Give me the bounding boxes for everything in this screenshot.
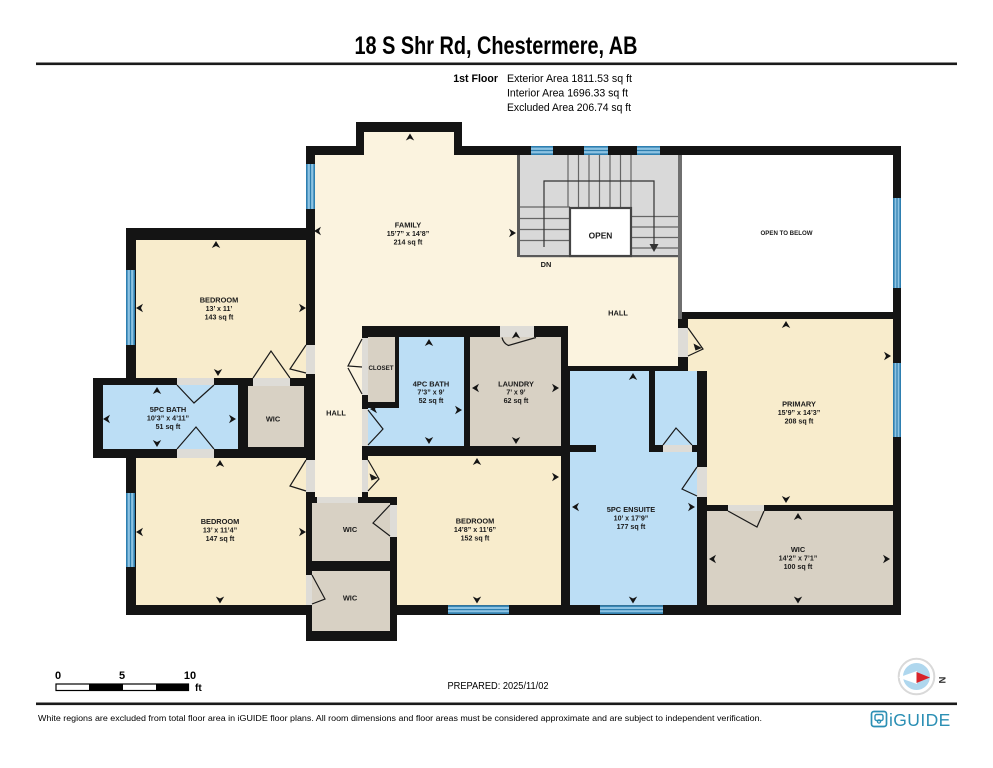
svg-text:18 S Shr Rd, Chestermere, AB: 18 S Shr Rd, Chestermere, AB (355, 32, 638, 60)
svg-text:PREPARED: 2025/11/02: PREPARED: 2025/11/02 (448, 681, 549, 692)
svg-text:ft: ft (195, 683, 202, 694)
svg-text:7’3” x 9’: 7’3” x 9’ (417, 389, 444, 397)
svg-text:Excluded Area 206.74 sq ft: Excluded Area 206.74 sq ft (507, 102, 631, 114)
svg-text:5: 5 (119, 670, 125, 682)
svg-text:HALL: HALL (326, 409, 346, 418)
svg-text:HALL: HALL (608, 309, 628, 318)
svg-text:14’8” x 11’6”: 14’8” x 11’6” (454, 526, 497, 534)
svg-text:15’7” x 14’8”: 15’7” x 14’8” (387, 230, 430, 238)
svg-text:WIC: WIC (791, 545, 806, 554)
svg-text:BEDROOM: BEDROOM (456, 517, 495, 526)
svg-text:152 sq ft: 152 sq ft (461, 534, 490, 542)
svg-text:7’ x 9’: 7’ x 9’ (506, 389, 525, 397)
svg-text:OPEN: OPEN (589, 231, 613, 241)
svg-text:White regions are excluded fro: White regions are excluded from total fl… (38, 713, 762, 723)
svg-text:DN: DN (541, 260, 552, 269)
svg-text:10’3” x 4’11”: 10’3” x 4’11” (147, 414, 190, 422)
svg-text:WIC: WIC (266, 415, 281, 424)
svg-text:5PC ENSUITE: 5PC ENSUITE (607, 505, 656, 514)
svg-text:214 sq ft: 214 sq ft (394, 238, 423, 246)
svg-text:10’ x 17’9”: 10’ x 17’9” (614, 514, 649, 522)
svg-text:15’9” x 14’3”: 15’9” x 14’3” (778, 409, 821, 417)
svg-text:BEDROOM: BEDROOM (200, 296, 239, 305)
svg-text:5PC BATH: 5PC BATH (150, 405, 186, 414)
svg-text:LAUNDRY: LAUNDRY (498, 379, 534, 388)
svg-text:Exterior Area 1811.53 sq ft: Exterior Area 1811.53 sq ft (507, 73, 632, 85)
svg-text:OPEN TO BELOW: OPEN TO BELOW (761, 230, 814, 237)
svg-text:62 sq ft: 62 sq ft (504, 397, 529, 405)
svg-text:14’2” x 7’1”: 14’2” x 7’1” (779, 554, 818, 562)
svg-text:Interior Area 1696.33 sq ft: Interior Area 1696.33 sq ft (507, 88, 628, 100)
svg-text:177 sq ft: 177 sq ft (617, 523, 646, 531)
svg-text:WIC: WIC (343, 525, 358, 534)
svg-text:4PC BATH: 4PC BATH (413, 379, 449, 388)
svg-text:10: 10 (184, 670, 196, 682)
svg-text:BEDROOM: BEDROOM (201, 517, 240, 526)
svg-text:52 sq ft: 52 sq ft (419, 397, 444, 405)
svg-text:100 sq ft: 100 sq ft (784, 563, 813, 571)
svg-text:0: 0 (55, 670, 61, 682)
svg-text:WIC: WIC (343, 593, 358, 602)
svg-text:143 sq ft: 143 sq ft (205, 313, 234, 321)
svg-text:208 sq ft: 208 sq ft (785, 417, 814, 425)
svg-text:CLOSET: CLOSET (368, 365, 393, 372)
svg-text:147 sq ft: 147 sq ft (206, 535, 235, 543)
svg-text:iGUIDE: iGUIDE (889, 710, 951, 730)
svg-text:13’ x 11’4”: 13’ x 11’4” (203, 526, 238, 534)
svg-text:51 sq ft: 51 sq ft (156, 423, 181, 431)
svg-text:1st Floor: 1st Floor (453, 73, 498, 85)
svg-text:PRIMARY: PRIMARY (782, 400, 816, 409)
svg-text:13’ x 11’: 13’ x 11’ (206, 305, 233, 313)
svg-text:N: N (936, 677, 947, 684)
svg-text:FAMILY: FAMILY (395, 221, 421, 230)
